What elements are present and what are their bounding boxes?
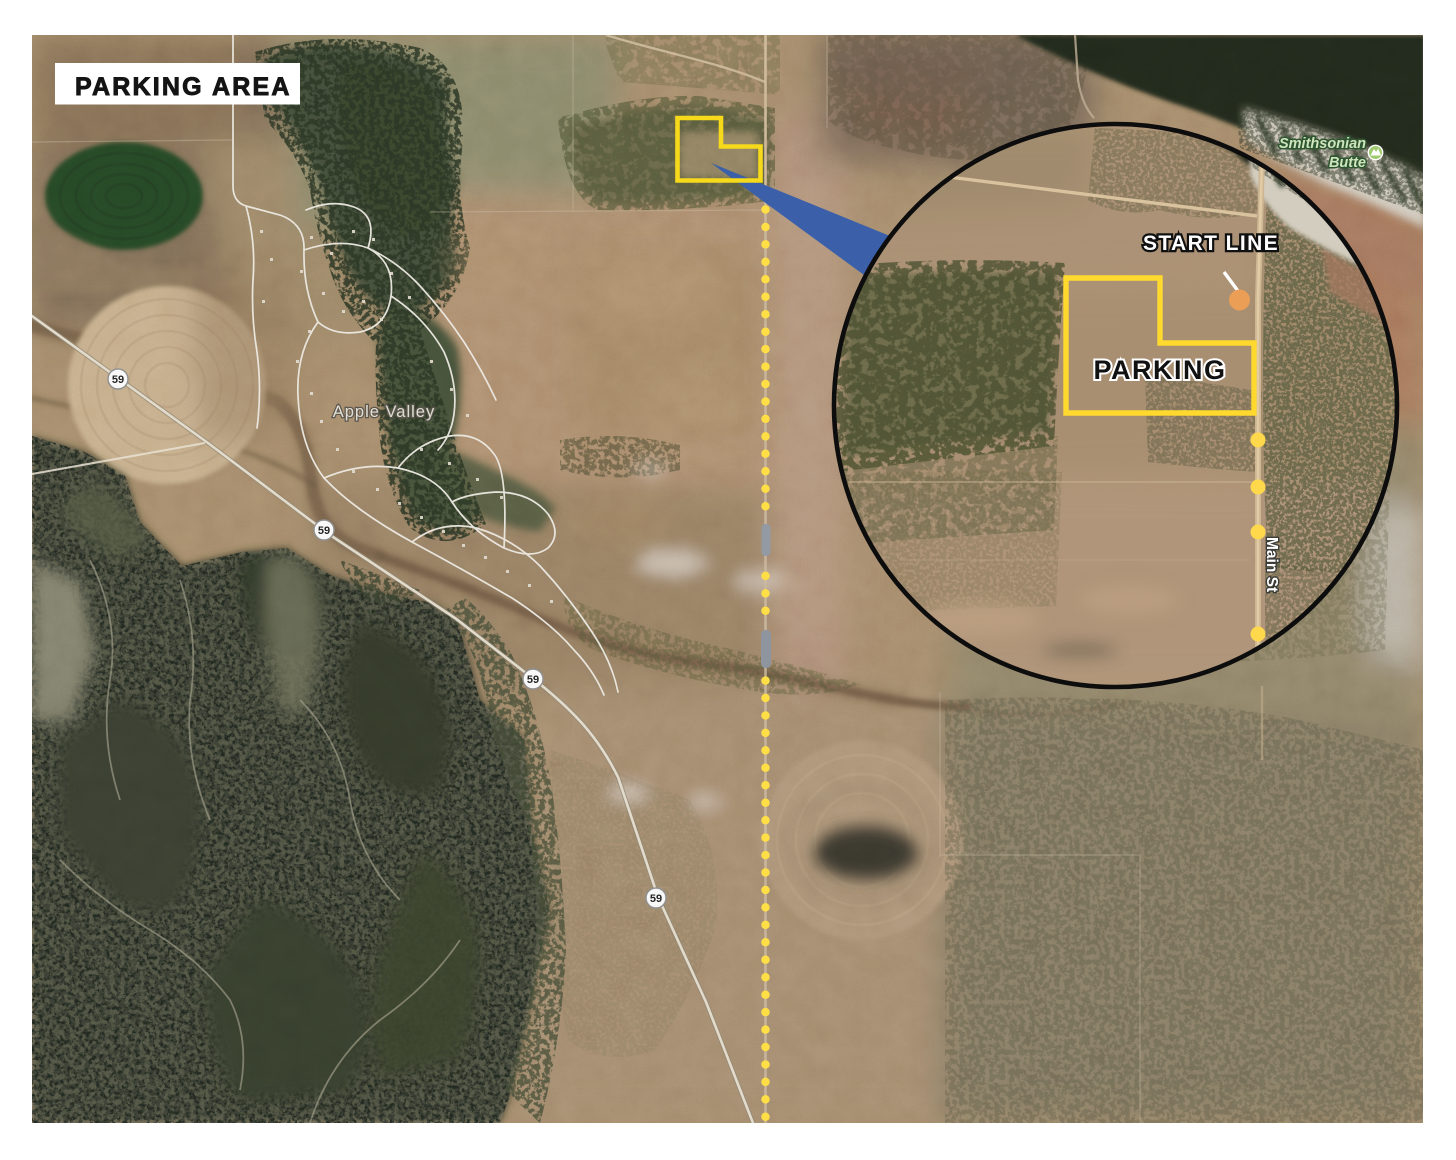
svg-text:PARKING AREA: PARKING AREA: [75, 73, 292, 101]
svg-text:Main St: Main St: [1263, 537, 1280, 592]
svg-text:Smithsonian: Smithsonian: [1279, 136, 1366, 152]
svg-text:PARKING: PARKING: [1093, 355, 1226, 385]
svg-text:START LINE: START LINE: [1143, 232, 1279, 255]
svg-text:Butte: Butte: [1329, 155, 1366, 171]
